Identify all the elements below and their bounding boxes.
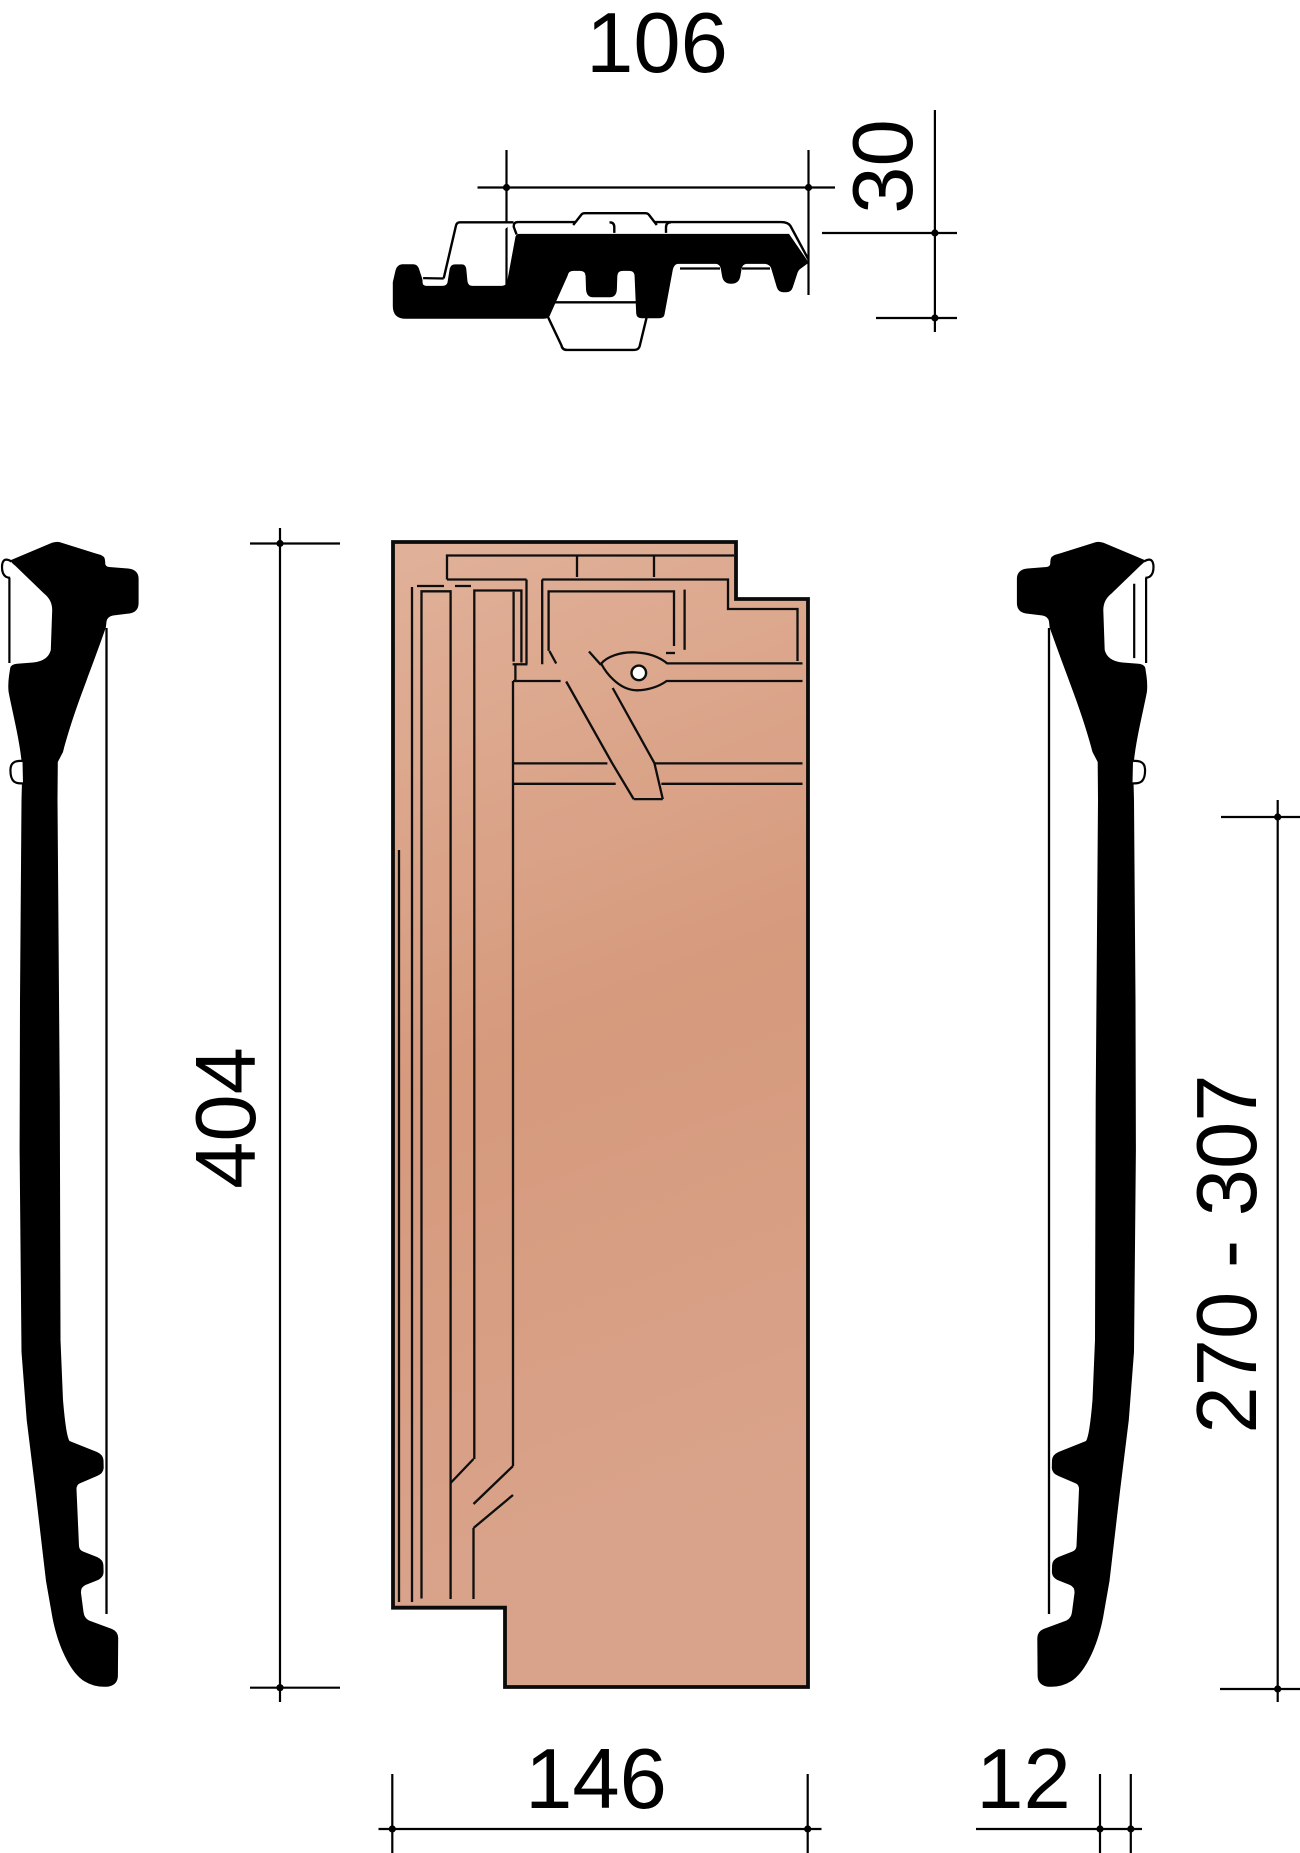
svg-text:404: 404 [179,1047,274,1189]
svg-text:270 - 307: 270 - 307 [1180,1074,1275,1433]
svg-text:146: 146 [525,1732,667,1827]
svg-text:106: 106 [586,0,728,91]
svg-text:30: 30 [836,119,931,214]
svg-text:12: 12 [976,1732,1071,1827]
